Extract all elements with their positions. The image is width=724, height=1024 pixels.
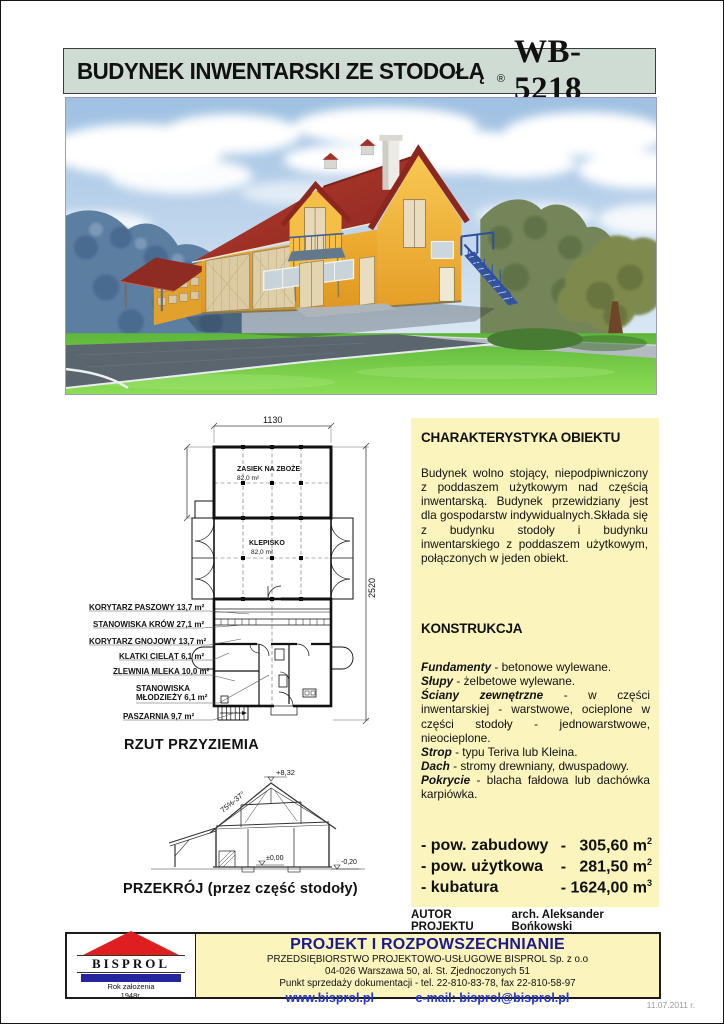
logo-bar	[81, 974, 181, 982]
characteristics-block: CHARAKTERYSTYKA OBIEKTU Budynek wolno st…	[421, 430, 648, 565]
level-zero: ±0,00	[266, 855, 284, 862]
plan-caption: RZUT PRZYZIEMIA	[124, 737, 259, 753]
plan-label-stanowiska-mlodziezy: STANOWISKA MŁODZIEŻY 6,1 m²	[136, 684, 218, 703]
footer-email-link[interactable]: e-mail: bisprol@bisprol.pl	[416, 991, 570, 1005]
construction-item: Ściany zewnętrzne - w części inwentarski…	[421, 688, 650, 745]
stat-volume: - kubatura - 1624,00 m3	[421, 878, 652, 899]
plan-label-korytarz-paszowy: KORYTARZ PASZOWY 13,7 m²	[89, 603, 204, 612]
level-ridge: +8,32	[276, 768, 295, 777]
footer-title: PROJEKT I ROZPOWSZECHNIANIE	[196, 936, 659, 954]
chute	[195, 501, 214, 518]
section-drawing: +8,32 ±0,00 -0,20 75%-37°	[73, 761, 373, 889]
floor-plan-drawing: 1130 2520	[71, 413, 403, 761]
gable-window	[431, 242, 453, 259]
building-render	[65, 97, 657, 395]
title-bar: BUDYNEK INWENTARSKI ZE STODOŁĄ ® WB-5218	[63, 48, 656, 94]
project-sheet: BUDYNEK INWENTARSKI ZE STODOŁĄ ® WB-5218	[0, 0, 724, 1024]
area-stats: - pow. zabudowy - 305,60 m2 - pow. użytk…	[421, 836, 652, 899]
characteristics-body: Budynek wolno stojący, niepodpiwniczony …	[421, 466, 648, 565]
construction-item: Pokrycie - blacha fałdowa lub dachówka k…	[421, 773, 650, 801]
plan-label-paszarnia: PASZARNIA 9,7 m²	[123, 712, 194, 721]
author-line: AUTOR PROJEKTU arch. Aleksander Bońkowsk…	[411, 909, 659, 933]
bushes	[487, 328, 583, 350]
footer-info: PROJEKT I ROZPOWSZECHNIANIE PRZEDSIĘBIOR…	[196, 934, 659, 997]
construction-heading: KONSTRUKCJA	[421, 621, 650, 636]
render-scene	[66, 98, 656, 394]
page-title: BUDYNEK INWENTARSKI ZE STODOŁĄ	[77, 58, 484, 85]
footer: BISPROL Rok założenia 1948r. PROJEKT I R…	[65, 932, 661, 999]
logo-cell: BISPROL Rok założenia 1948r.	[67, 934, 196, 997]
plan-label-zlewnia-mleka: ZLEWNIA MLEKA 10,0 m²	[113, 667, 209, 676]
cross-section: +8,32 ±0,00 -0,20 75%-37° PRZEKRÓJ (prze…	[73, 761, 373, 911]
front-door	[298, 260, 326, 311]
construction-block: KONSTRUKCJA Fundamenty - betonowe wylewa…	[421, 621, 650, 802]
characteristics-heading: CHARAKTERYSTYKA OBIEKTU	[421, 430, 648, 445]
logo-name: BISPROL	[77, 955, 185, 973]
logo-roof-icon	[83, 931, 179, 955]
date-stamp: 11.07.2011 r.	[647, 1000, 695, 1010]
room-klepisko-area: 82,0 m²	[251, 549, 274, 556]
gable-door	[439, 267, 454, 301]
room-klepisko: KLEPISKO	[249, 540, 285, 547]
section-lines	[151, 783, 365, 872]
info-panel: CHARAKTERYSTYKA OBIEKTU Budynek wolno st…	[411, 418, 659, 907]
construction-item: Dach - stromy drewniany, dwuspadowy.	[421, 759, 650, 773]
author-name: arch. Aleksander Bońkowski	[512, 909, 659, 933]
plan-label-stanowiska-krow: STANOWISKA KRÓW 27,1 m²	[93, 620, 204, 629]
dim-width: 1130	[263, 415, 282, 425]
construction-item: Strop - typu Teriva lub Kleina.	[421, 745, 650, 759]
stat-usable-area: - pow. użytkowa - 281,50 m2	[421, 857, 652, 878]
roof-slope-label: 75%-37°	[219, 789, 247, 814]
side-door	[360, 256, 375, 305]
bisprol-logo: BISPROL Rok założenia 1948r.	[73, 931, 189, 1000]
dim-height: 2520	[367, 578, 377, 598]
door-swing	[279, 692, 293, 706]
stairs	[218, 706, 248, 720]
author-label: AUTOR PROJEKTU	[411, 909, 512, 933]
footer-address: 04-026 Warszawa 50, al. St. Zjednoczonyc…	[196, 966, 659, 978]
floor-plan: 1130 2520	[71, 413, 403, 761]
construction-item: Fundamenty - betonowe wylewane.	[421, 660, 650, 674]
footer-company: PRZEDSIĘBIORSTWO PROJEKTOWO-USŁUGOWE BIS…	[196, 954, 659, 966]
livestock-walls	[214, 599, 331, 706]
footer-website-link[interactable]: www.bisprol.pl	[286, 991, 374, 1005]
section-caption: PRZEKRÓJ (przez część stodoły)	[123, 881, 358, 897]
registered-mark: ®	[497, 73, 505, 85]
plan-label-klatki-cielat: KLATKI CIELĄT 6,1 m²	[119, 652, 204, 661]
room-zasiek: ZASIEK NA ZBOŻE	[237, 465, 300, 473]
stat-built-area: - pow. zabudowy - 305,60 m2	[421, 836, 652, 857]
construction-item: Słupy - żelbetowe wylewane.	[421, 674, 650, 688]
door-swings	[192, 522, 353, 599]
footer-sales: Punkt sprzedaży dokumentacji - tel. 22-8…	[196, 978, 659, 990]
plan-label-korytarz-gnojowy: KORYTARZ GNOJOWY 13,7 m²	[89, 637, 206, 646]
room-zasiek-area: 82,0 m²	[237, 475, 260, 482]
logo-founded-line2: 1948r.	[73, 992, 189, 1001]
level-base: -0,20	[341, 859, 357, 866]
column-grid	[214, 447, 331, 706]
